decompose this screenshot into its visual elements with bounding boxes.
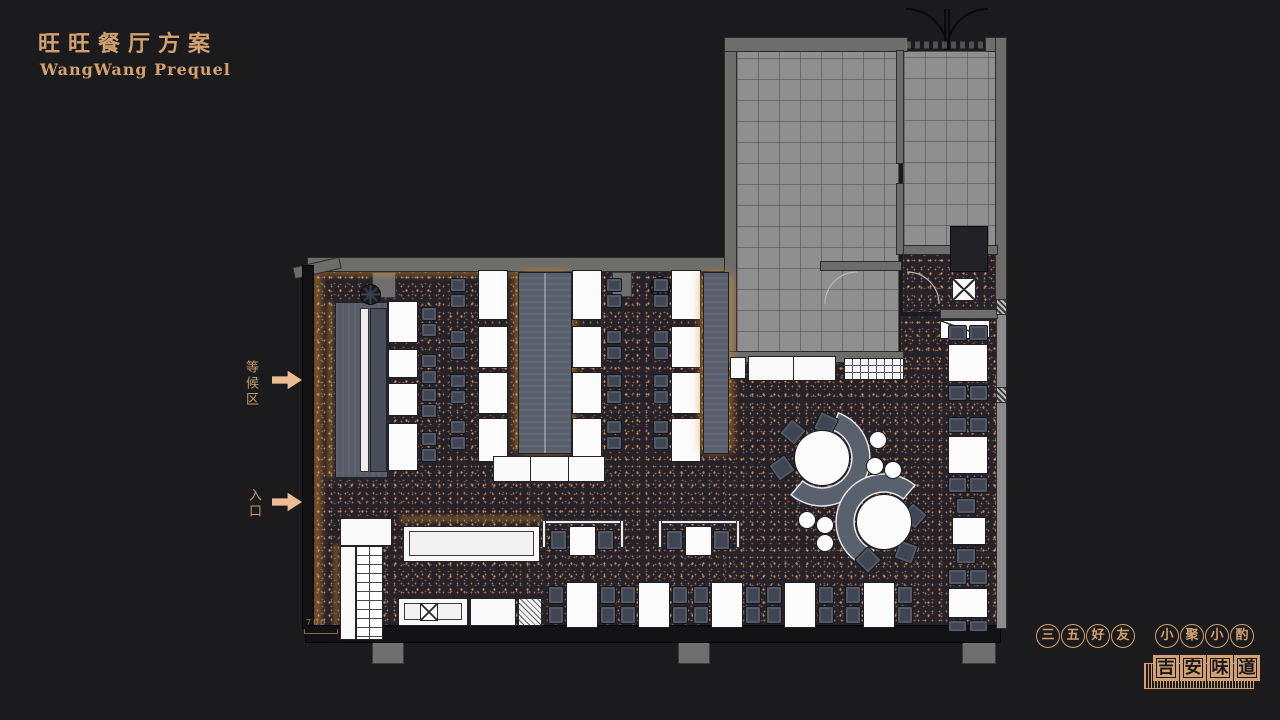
chair bbox=[421, 307, 437, 321]
chair bbox=[450, 330, 466, 344]
seal-char: 吉 bbox=[1154, 656, 1178, 680]
table bbox=[478, 326, 508, 368]
bar bbox=[658, 520, 662, 548]
chair bbox=[550, 530, 567, 550]
chair bbox=[653, 420, 669, 434]
seal-char: 味 bbox=[1208, 656, 1232, 680]
chair bbox=[597, 530, 614, 550]
chair bbox=[450, 420, 466, 434]
slide: 旺旺餐厅方案 WangWang Prequel 等候区 入口 bbox=[0, 0, 1280, 720]
chair bbox=[450, 278, 466, 292]
chair bbox=[653, 390, 669, 404]
counter bbox=[748, 356, 836, 381]
chair bbox=[606, 346, 622, 360]
chair bbox=[548, 606, 564, 624]
footer-phrase-2: 小聚小酌 bbox=[1155, 624, 1255, 648]
table bbox=[566, 582, 598, 628]
table bbox=[569, 526, 596, 556]
chair bbox=[450, 436, 466, 450]
chair bbox=[606, 420, 622, 434]
bar bbox=[542, 520, 546, 548]
xbox bbox=[420, 603, 438, 621]
table bbox=[572, 326, 602, 368]
page-title: 旺旺餐厅方案 bbox=[38, 26, 218, 58]
table bbox=[388, 349, 418, 378]
chair bbox=[845, 606, 861, 624]
counter bbox=[340, 546, 356, 640]
plan-curves bbox=[300, 20, 1010, 670]
circle-char: 酌 bbox=[1230, 624, 1254, 648]
chair bbox=[606, 294, 622, 308]
table bbox=[388, 423, 418, 471]
chair bbox=[653, 294, 669, 308]
dimension-label: 700 bbox=[306, 618, 327, 627]
chair bbox=[606, 390, 622, 404]
chair bbox=[450, 390, 466, 404]
chair bbox=[693, 586, 709, 604]
stool bbox=[866, 457, 884, 475]
rtable bbox=[794, 430, 850, 486]
chair bbox=[653, 346, 669, 360]
chair bbox=[606, 374, 622, 388]
entrance-label: 入口 bbox=[246, 488, 260, 520]
chair bbox=[897, 606, 913, 624]
chair bbox=[600, 586, 616, 604]
chair bbox=[969, 569, 988, 585]
chair bbox=[969, 620, 988, 632]
chair bbox=[897, 586, 913, 604]
stool bbox=[798, 511, 816, 529]
chair bbox=[672, 606, 688, 624]
chair bbox=[620, 606, 636, 624]
table bbox=[478, 270, 508, 320]
stool bbox=[869, 431, 887, 449]
chair bbox=[450, 346, 466, 360]
chair bbox=[672, 586, 688, 604]
counter bbox=[403, 526, 540, 562]
chair bbox=[450, 294, 466, 308]
table bbox=[952, 517, 986, 545]
bar bbox=[620, 520, 624, 548]
counter bbox=[493, 456, 605, 482]
xbox bbox=[952, 278, 976, 301]
table bbox=[572, 372, 602, 414]
rtable bbox=[856, 494, 912, 550]
chair bbox=[421, 432, 437, 446]
chair bbox=[693, 606, 709, 624]
door-swing bbox=[825, 272, 857, 304]
chair bbox=[969, 417, 988, 433]
chair bbox=[606, 278, 622, 292]
chair bbox=[606, 330, 622, 344]
chair bbox=[956, 548, 976, 564]
stool bbox=[816, 534, 834, 552]
bench bbox=[370, 308, 387, 472]
chair bbox=[766, 586, 782, 604]
table bbox=[572, 270, 602, 320]
chair bbox=[421, 370, 437, 384]
chair bbox=[948, 385, 967, 401]
stool bbox=[884, 461, 902, 479]
hatchbox bbox=[518, 598, 542, 626]
table bbox=[638, 582, 670, 628]
table bbox=[711, 582, 743, 628]
block bbox=[950, 226, 988, 272]
waiting-area-label: 等候区 bbox=[243, 360, 257, 408]
chair bbox=[421, 388, 437, 402]
waiting-area-arrow-icon bbox=[272, 370, 302, 390]
chair bbox=[845, 586, 861, 604]
page-subtitle: WangWang Prequel bbox=[40, 60, 231, 79]
circle-char: 好 bbox=[1086, 624, 1110, 648]
seal-char: 安 bbox=[1181, 656, 1205, 680]
chair bbox=[548, 586, 564, 604]
table bbox=[948, 588, 988, 618]
table bbox=[388, 383, 418, 416]
chair bbox=[818, 606, 834, 624]
chair bbox=[606, 436, 622, 450]
door-swing bbox=[907, 272, 939, 304]
circle-char: 三 bbox=[1036, 624, 1060, 648]
chair bbox=[653, 278, 669, 292]
chair bbox=[600, 606, 616, 624]
table bbox=[685, 526, 712, 556]
bar bbox=[542, 520, 624, 524]
floor-plan: 700 bbox=[300, 20, 1010, 670]
seal-char: 道 bbox=[1235, 656, 1259, 680]
chair bbox=[421, 323, 437, 337]
chair bbox=[666, 530, 683, 550]
table bbox=[863, 582, 895, 628]
table bbox=[948, 344, 988, 382]
table bbox=[784, 582, 816, 628]
table bbox=[671, 326, 701, 368]
chair bbox=[948, 325, 967, 341]
chair bbox=[745, 606, 761, 624]
table bbox=[671, 372, 701, 414]
chair bbox=[948, 417, 967, 433]
chair bbox=[969, 477, 988, 493]
table bbox=[478, 372, 508, 414]
table bbox=[948, 436, 988, 474]
table bbox=[671, 270, 701, 320]
counter bbox=[470, 598, 516, 626]
chair bbox=[713, 530, 730, 550]
chair bbox=[653, 374, 669, 388]
chair bbox=[421, 448, 437, 462]
chair bbox=[766, 606, 782, 624]
booth bbox=[518, 272, 572, 454]
chair bbox=[653, 330, 669, 344]
circle-char: 小 bbox=[1205, 624, 1229, 648]
counter bbox=[730, 357, 746, 379]
circle-char: 聚 bbox=[1180, 624, 1204, 648]
chair bbox=[620, 586, 636, 604]
booth bbox=[703, 272, 729, 454]
bar bbox=[736, 520, 740, 548]
chair bbox=[421, 354, 437, 368]
counter bbox=[340, 518, 392, 546]
fan bbox=[360, 284, 381, 305]
chair bbox=[450, 374, 466, 388]
brand-seal: 吉安味道 bbox=[1154, 656, 1259, 680]
table bbox=[388, 301, 418, 343]
bar bbox=[658, 520, 740, 524]
entrance-arrow-icon bbox=[272, 492, 302, 512]
chair bbox=[948, 477, 967, 493]
footer-phrase-1: 三五好友 bbox=[1036, 624, 1136, 648]
circle-char: 五 bbox=[1061, 624, 1085, 648]
chair bbox=[421, 404, 437, 418]
chair bbox=[818, 586, 834, 604]
chair bbox=[745, 586, 761, 604]
gridbox bbox=[844, 358, 904, 380]
chair bbox=[653, 436, 669, 450]
table bbox=[671, 418, 701, 462]
circle-char: 友 bbox=[1111, 624, 1135, 648]
chair bbox=[969, 385, 988, 401]
stool bbox=[816, 516, 834, 534]
circle-char: 小 bbox=[1155, 624, 1179, 648]
chair bbox=[948, 620, 967, 632]
chair bbox=[948, 569, 967, 585]
bar bbox=[360, 308, 369, 472]
chair bbox=[956, 498, 976, 514]
chair bbox=[969, 325, 988, 341]
ladder bbox=[356, 546, 383, 640]
